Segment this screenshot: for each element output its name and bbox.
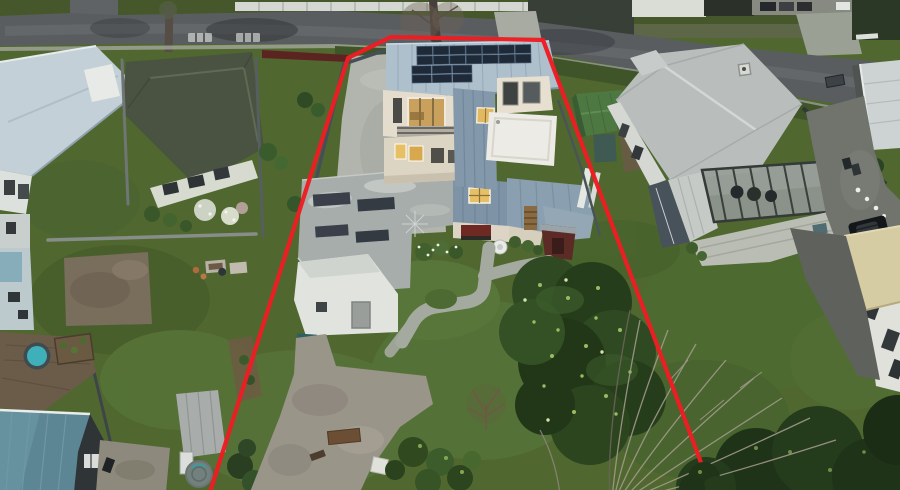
maroon-shed	[540, 224, 577, 260]
blue-roof-house	[0, 410, 104, 490]
white-bird	[856, 188, 861, 193]
pergola	[702, 162, 828, 222]
aerial-photo	[0, 0, 900, 490]
wooden-bench	[327, 428, 360, 444]
window	[6, 222, 16, 234]
aerial-photo-canvas	[0, 0, 900, 490]
window	[316, 302, 327, 312]
maroon-double-door	[461, 225, 491, 237]
window	[4, 180, 15, 195]
roof-terrace	[486, 112, 557, 166]
garage-door	[352, 302, 370, 328]
dirt-path	[96, 440, 170, 490]
white-bird	[874, 206, 879, 211]
lit-windows-mid	[395, 144, 423, 161]
dark-hedge	[704, 0, 754, 16]
shed-door	[552, 238, 564, 254]
narrow-window	[393, 98, 402, 123]
outdoor-furniture	[731, 186, 744, 199]
window	[18, 310, 28, 319]
lit-main-window	[408, 98, 445, 129]
white-bird	[865, 197, 869, 201]
outdoor-furniture	[747, 187, 761, 201]
brown-patio	[64, 252, 152, 326]
raised-garden-bed	[55, 334, 94, 365]
outdoor-furniture	[765, 190, 777, 202]
parked-cars	[760, 2, 850, 11]
white-fence	[235, 2, 530, 11]
white-wall	[632, 0, 706, 17]
shed-wall	[593, 133, 616, 162]
blue-tarp	[0, 252, 22, 282]
white-car	[836, 2, 850, 10]
window	[503, 82, 518, 105]
lit-attic-window	[469, 188, 490, 203]
window	[18, 184, 29, 199]
window	[431, 148, 444, 163]
window	[8, 292, 20, 302]
spa-pool	[27, 346, 47, 366]
window	[523, 82, 540, 103]
garden-circle	[425, 289, 457, 309]
